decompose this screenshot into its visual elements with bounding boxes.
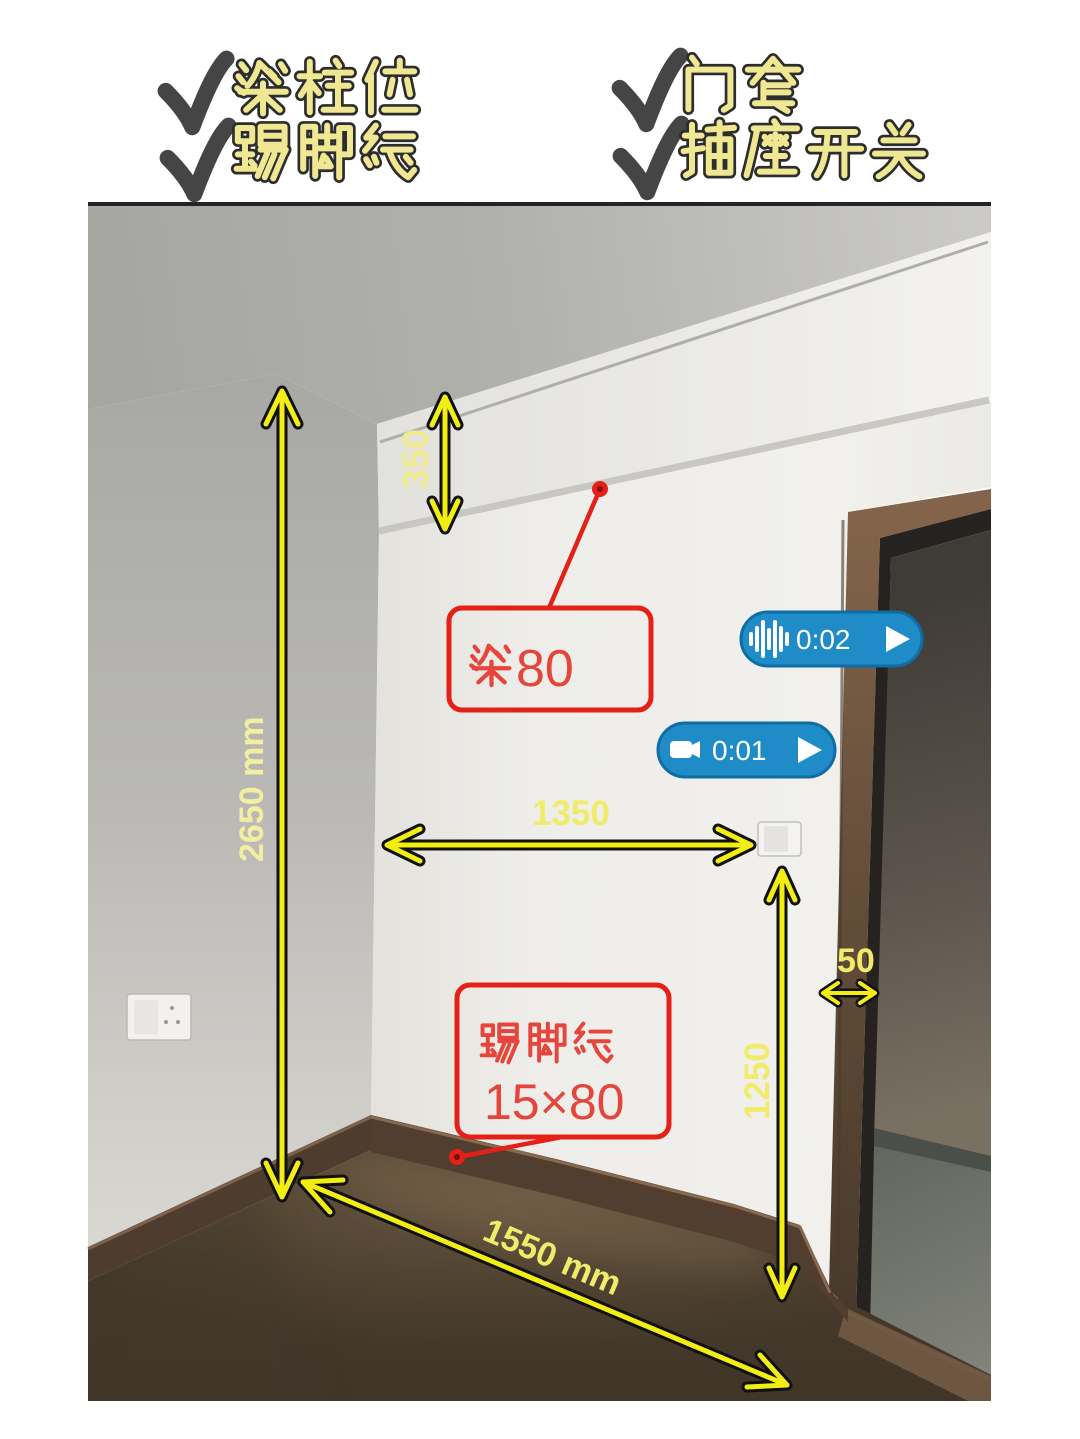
svg-text:50: 50 (837, 942, 875, 980)
svg-text:15×80: 15×80 (484, 1074, 624, 1130)
svg-text:350: 350 (395, 429, 436, 489)
svg-text:1350: 1350 (532, 794, 610, 833)
svg-text:0:01: 0:01 (712, 735, 767, 766)
svg-text:2650 mm: 2650 mm (233, 716, 271, 862)
svg-text:80: 80 (516, 640, 574, 698)
svg-text:0:02: 0:02 (796, 624, 851, 655)
svg-text:1250: 1250 (738, 1042, 777, 1120)
